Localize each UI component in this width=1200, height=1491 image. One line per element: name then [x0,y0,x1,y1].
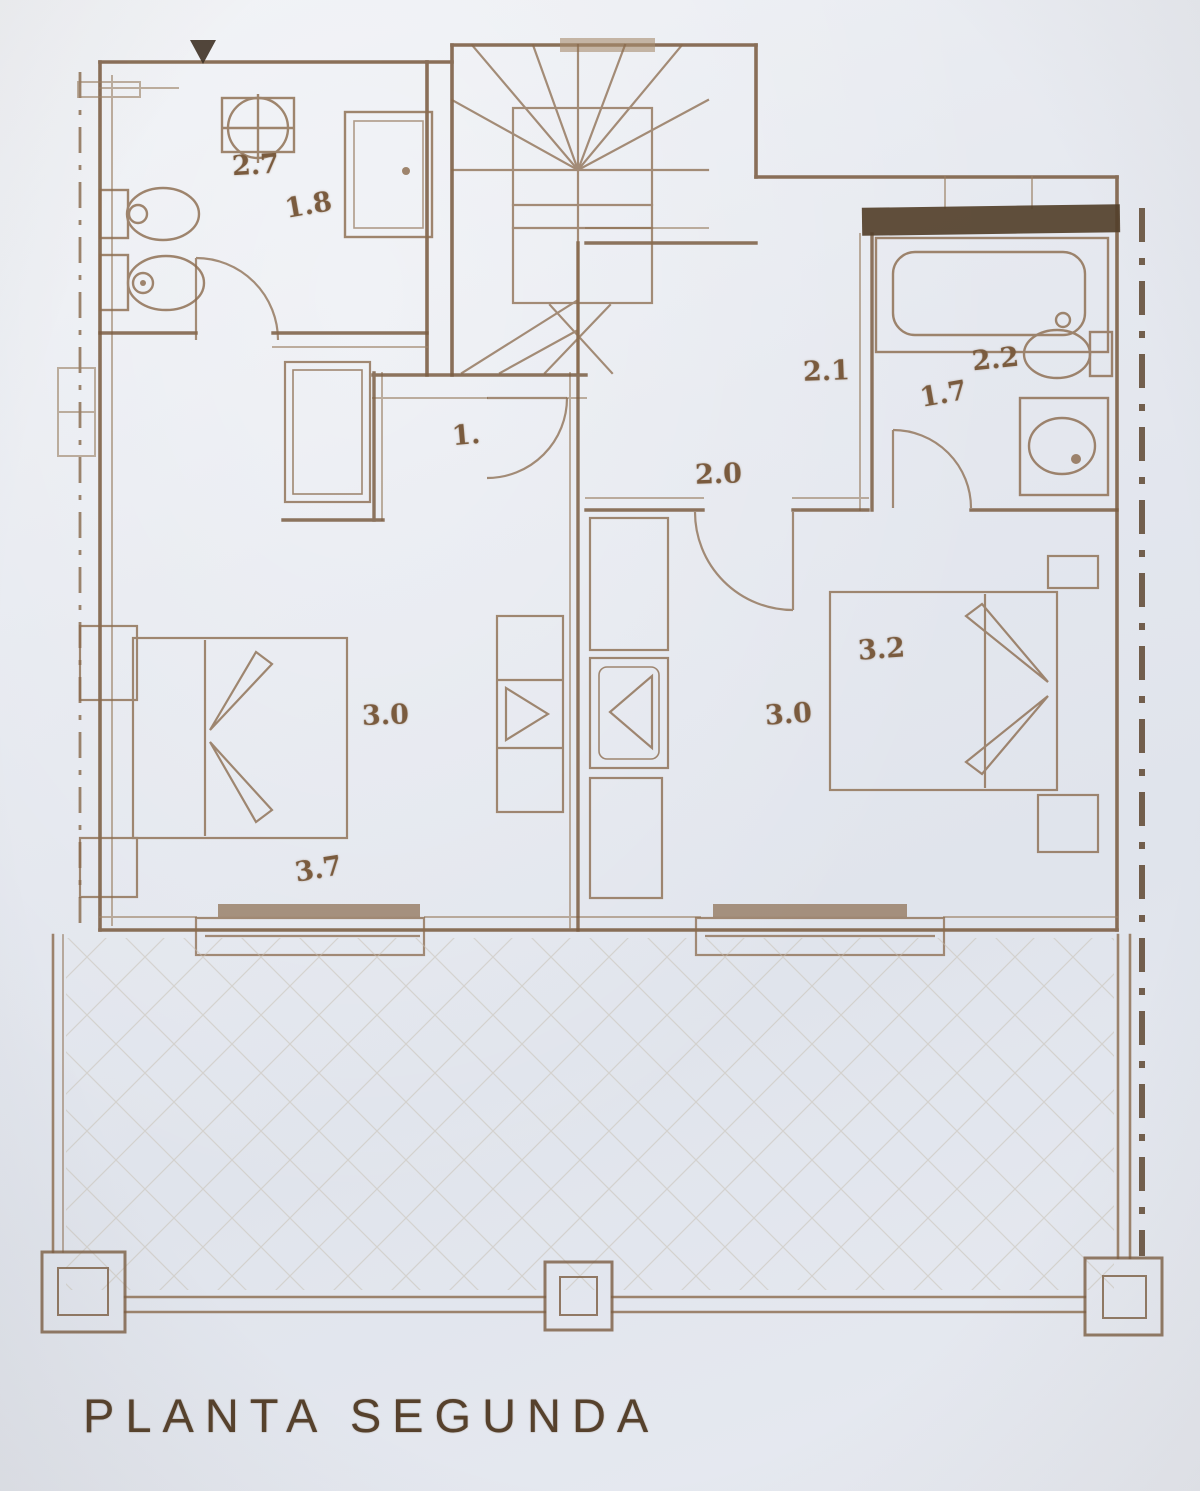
dim-label-bedroom2-depth: 3.0 [764,697,813,731]
floor-plan-canvas [0,0,1200,1491]
bathroom2-door-icon [893,430,971,508]
toilet-icon [100,188,199,240]
washbasin-icon [1020,398,1108,495]
slider1-track [218,904,420,917]
dim-label-bath2-width: 2.2 [971,342,1021,378]
dim-label-hall-depth: 2.0 [694,458,742,491]
wc-icon [1024,330,1112,378]
closet-left-icon [497,616,563,812]
scanned-floor-plan-page: 2.7 1.8 2.1 2.2 1.7 2.0 1. 3.0 3.7 3.2 3… [0,0,1200,1491]
dim-label-bedroom1-depth: 3.0 [361,699,409,732]
bathtub-icon [876,238,1108,352]
staircase [452,45,708,373]
bedroom1-furniture [80,362,370,897]
nightstand-icon [80,626,137,700]
central-closets [497,518,668,898]
wardrobe-icon [285,362,370,502]
bedroom2-furniture [830,556,1098,852]
nightstand-icon [80,838,137,897]
bathroom1-door-icon [196,258,278,340]
interior-walls [100,234,1117,930]
slider2-track [713,904,907,917]
bathroom2-north-wall [862,204,1120,236]
terrace-railing [125,1297,1085,1312]
dim-label-bath1-sink: 2.7 [231,149,280,182]
dim-label-hall-width: 2.1 [802,355,850,388]
dim-label-bedroom2-width: 3.2 [857,632,906,666]
nightstand-icon [1038,795,1098,852]
stair-window-sill [560,38,655,52]
bed2-icon [830,592,1057,790]
wall-inner-faces [58,76,1117,928]
bed1-icon [133,638,347,838]
bathroom1-fixtures [100,94,432,310]
plan-title: PLANTA SEGUNDA [83,1388,659,1443]
terrace-right-railing [1118,935,1130,1258]
bidet-icon [100,255,204,310]
shower-tray-icon [345,112,432,237]
dim-label-corridor: 1. [451,419,482,452]
terrace [42,935,1162,1335]
corridor-door-icon [487,398,567,478]
terrace-floor-hatch [66,938,1114,1290]
nightstand-icon [1048,556,1098,588]
closet-right-icon [590,518,668,898]
bedroom2-door-icon [695,512,793,610]
door-swings [196,258,971,610]
